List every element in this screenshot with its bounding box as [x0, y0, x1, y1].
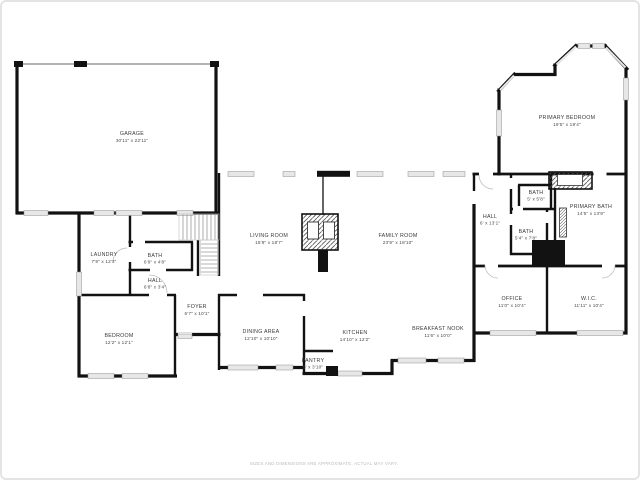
- room-dims-garage: 30'11" x 22'11": [116, 138, 149, 143]
- pantry-corner-block: [326, 366, 338, 376]
- room-dims-pantry: 5' x 3'10": [303, 365, 324, 370]
- room-label-breakfast-nook: BREAKFAST NOOK: [412, 326, 464, 332]
- room-label-bath-mid: BATH: [519, 229, 534, 235]
- room-label-hall-right: HALL: [483, 214, 497, 220]
- room-dims-foyer: 6'7" x 10'1": [185, 311, 210, 316]
- disclaimer-text: SIZES AND DIMENSIONS ARE APPROXIMATE, AC…: [250, 461, 398, 466]
- shower-fixture: [560, 208, 567, 237]
- room-dims-kitchen: 14'10" x 12'2": [340, 337, 371, 342]
- garage-door-header: [14, 61, 219, 67]
- room-dims-bedroom: 12'2" x 12'1": [105, 340, 133, 345]
- room-label-primary-bath: PRIMARY BATH: [570, 204, 612, 210]
- room-label-garage: GARAGE: [120, 131, 144, 137]
- room-label-laundry: LAUNDRY: [91, 252, 118, 258]
- room-dims-primary-bath: 14'5" x 13'9": [577, 211, 605, 216]
- room-label-foyer: FOYER: [187, 304, 207, 310]
- room-label-bedroom: BEDROOM: [104, 333, 133, 339]
- chimney-block: [532, 240, 565, 266]
- room-dims-bath-small: 5' x 5'8": [527, 197, 545, 202]
- room-label-dining-area: DINING AREA: [243, 329, 280, 335]
- room-dims-bath-mid: 5'4" x 7'8": [515, 236, 537, 241]
- room-label-bath-small: BATH: [529, 190, 544, 196]
- room-label-family-room: FAMILY ROOM: [378, 233, 417, 239]
- fireplace: [302, 171, 350, 272]
- room-label-primary-bedroom: PRIMARY BEDROOM: [539, 115, 596, 121]
- room-dims-wic: 11'11" x 10'4": [574, 303, 604, 308]
- bay-windows: [500, 47, 626, 91]
- room-label-office: OFFICE: [502, 296, 523, 302]
- room-dims-hall-right: 6' x 13'1": [480, 221, 501, 226]
- room-dims-family-room: 23'9" x 18'10": [383, 240, 414, 245]
- windows: [24, 44, 629, 379]
- room-label-hall-left: HALL: [148, 278, 162, 284]
- floor-plan-page: GARAGE 30'11" x 22'11" LIVING ROOM 15'9"…: [0, 0, 640, 480]
- room-dims-office: 11'0" x 10'4": [498, 303, 525, 308]
- room-label-pantry: PANTRY: [302, 358, 325, 364]
- room-label-kitchen: KITCHEN: [343, 330, 368, 336]
- closet-fixture: [549, 172, 592, 189]
- room-dims-dining-area: 12'10" x 10'10": [244, 336, 277, 341]
- room-dims-breakfast-nook: 11'6" x 10'0": [424, 333, 451, 338]
- room-label-bath-left: BATH: [148, 253, 163, 259]
- room-label-wic: W.I.C.: [581, 296, 597, 302]
- room-dims-laundry: 7'9" x 12'3": [92, 259, 117, 264]
- room-dims-primary-bedroom: 19'5" x 19'4": [553, 122, 581, 127]
- room-dims-bath-left: 6'9" x 4'8": [144, 260, 166, 265]
- room-dims-hall-left: 6'8" x 3'4": [144, 285, 166, 290]
- room-label-living-room: LIVING ROOM: [250, 233, 288, 239]
- room-dims-living-room: 15'9" x 18'7": [255, 240, 283, 245]
- floor-plan-drawing: GARAGE 30'11" x 22'11" LIVING ROOM 15'9"…: [2, 2, 640, 480]
